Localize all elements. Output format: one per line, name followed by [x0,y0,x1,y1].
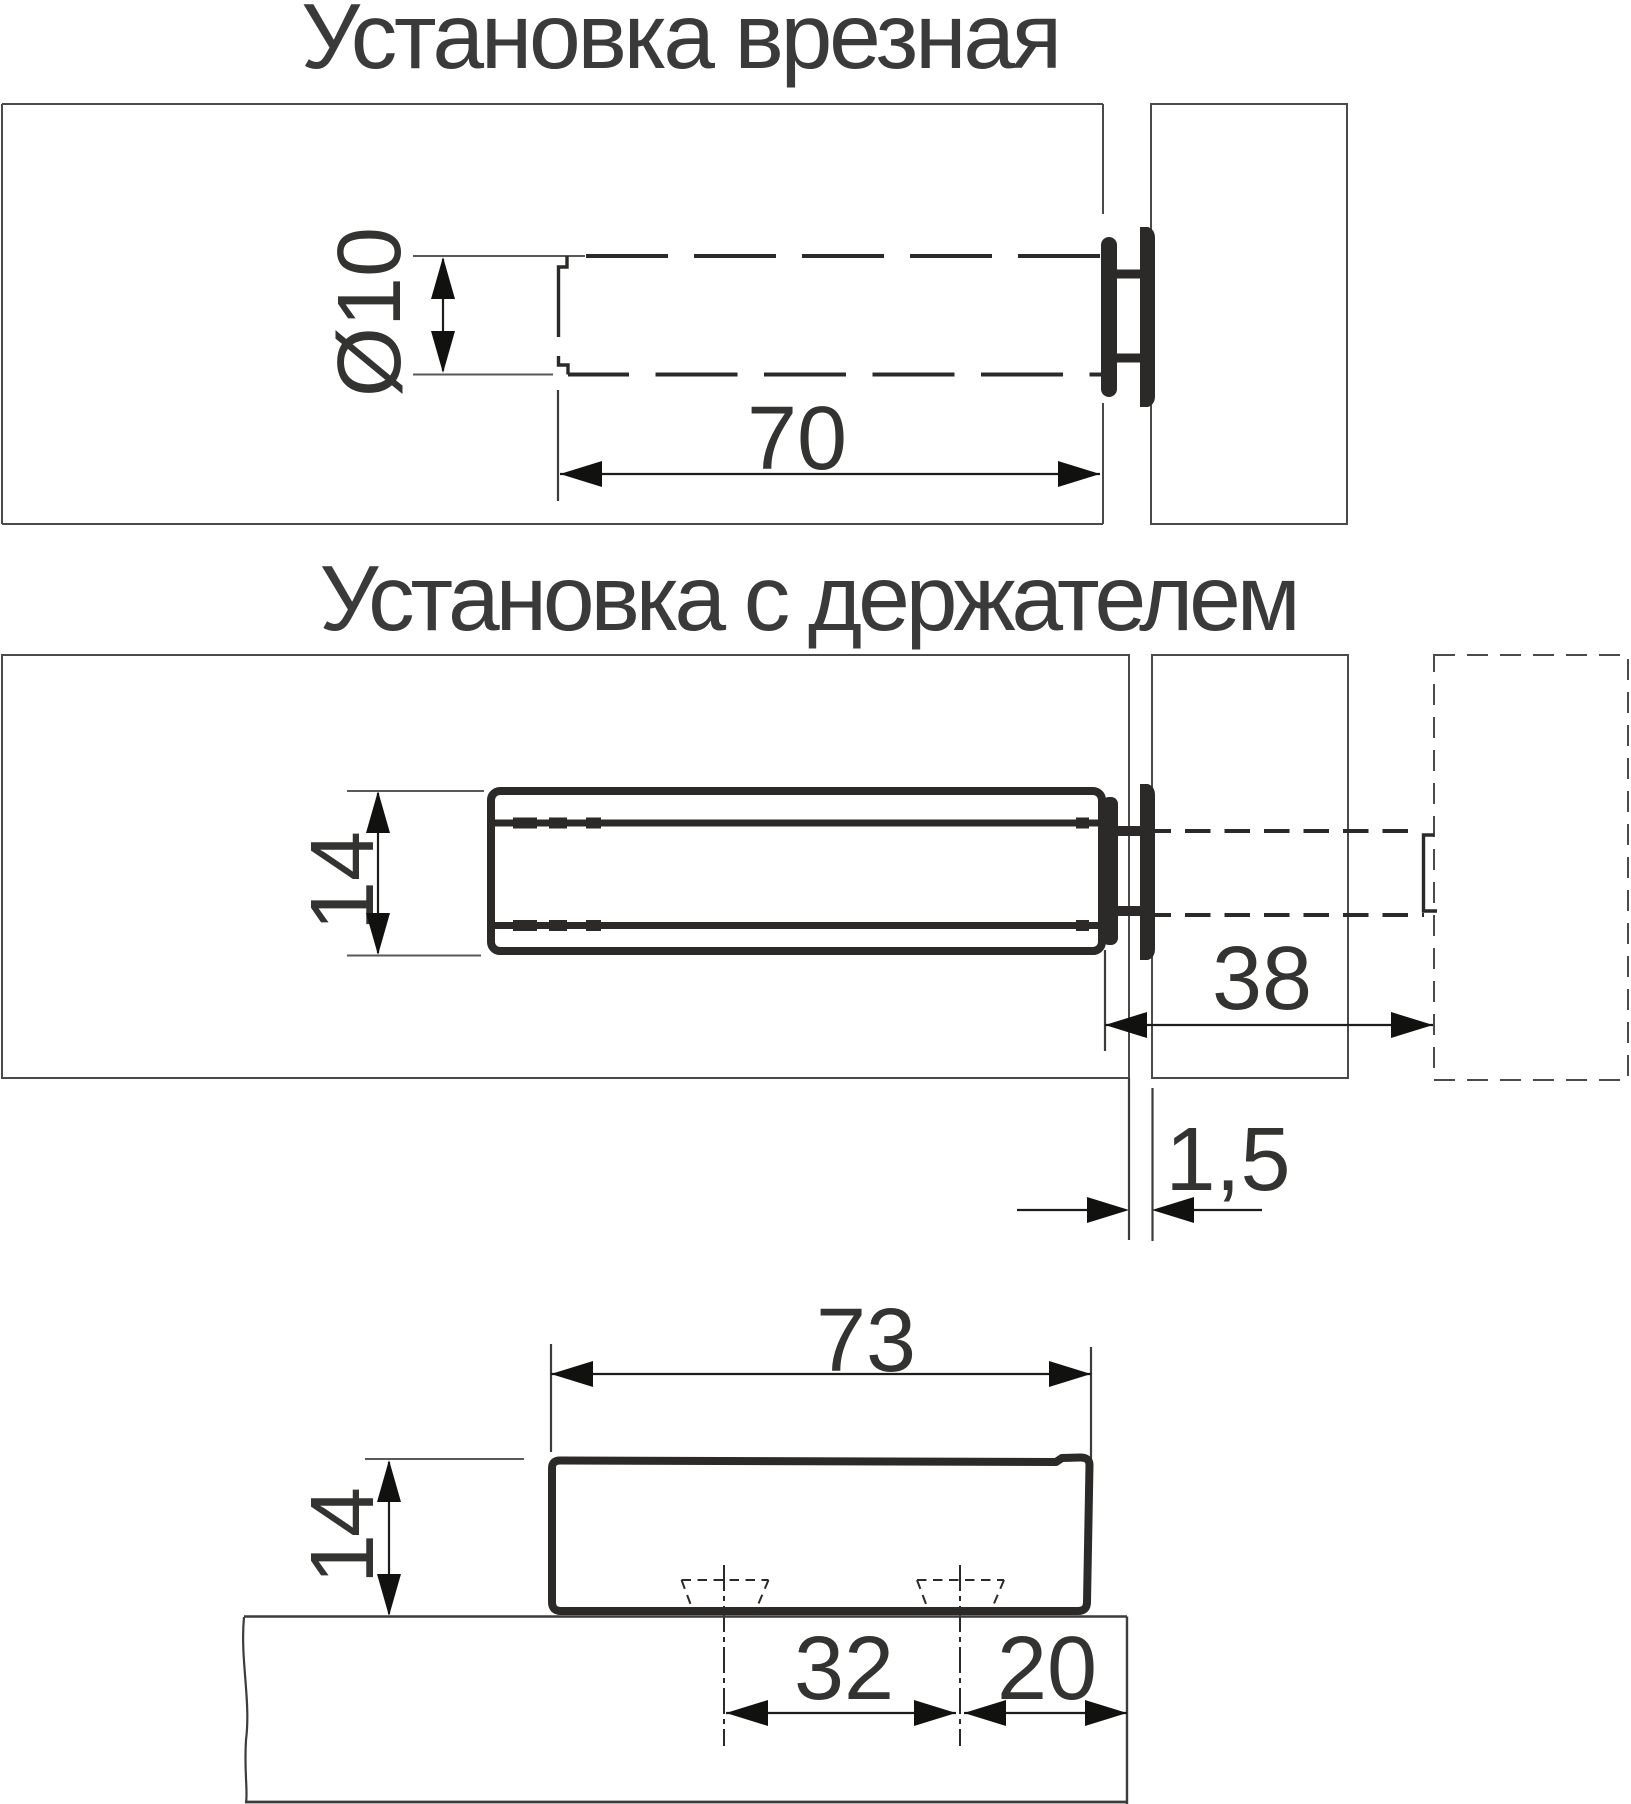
svg-text:Установка с держателем: Установка с держателем [319,546,1296,650]
svg-text:38: 38 [1212,929,1312,1029]
svg-text:73: 73 [816,1291,916,1391]
svg-text:1,5: 1,5 [1165,1110,1290,1210]
svg-text:70: 70 [747,389,847,489]
svg-text:20: 20 [997,1619,1097,1719]
svg-text:Установка врезная: Установка врезная [301,0,1059,88]
svg-text:32: 32 [794,1619,894,1719]
svg-text:14: 14 [293,1489,393,1584]
svg-text:Ø10: Ø10 [320,227,420,397]
